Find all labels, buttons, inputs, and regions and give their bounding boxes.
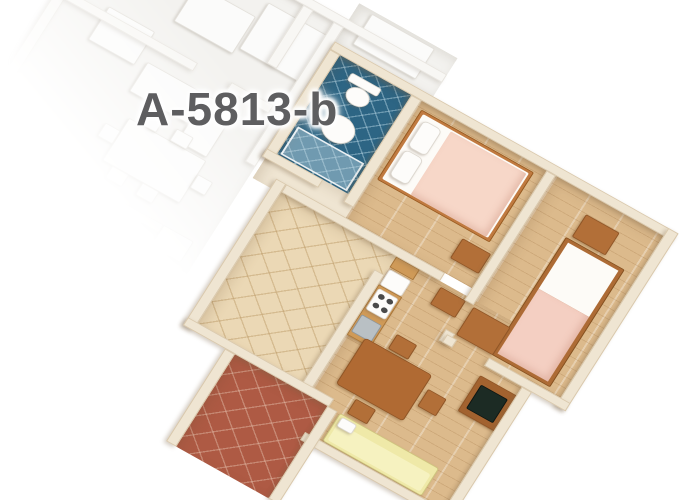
floorplan-render: A-5813-b (0, 0, 700, 500)
apartment-label: A-5813-b (136, 82, 338, 136)
stove-burner (380, 306, 389, 314)
stove-burner (372, 302, 381, 310)
stove-burner (377, 293, 386, 301)
stove-burner (385, 298, 394, 306)
